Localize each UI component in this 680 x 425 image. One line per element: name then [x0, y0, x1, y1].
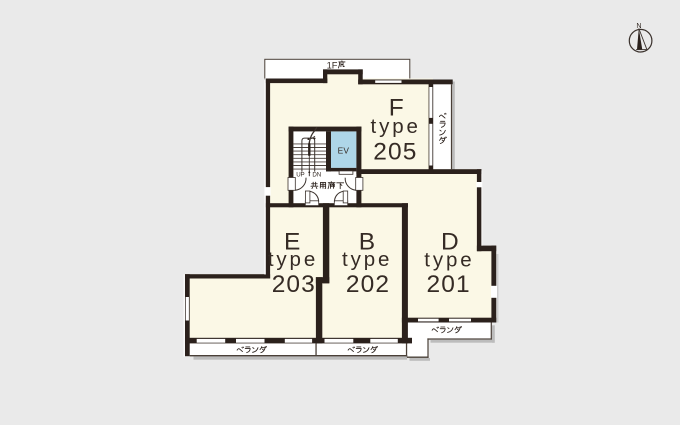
svg-text:type: type: [342, 248, 392, 271]
svg-text:DN: DN: [312, 171, 321, 178]
svg-text:EV: EV: [338, 145, 350, 155]
svg-text:201: 201: [427, 271, 471, 298]
svg-text:1F: 1F: [327, 60, 338, 70]
svg-text:202: 202: [346, 271, 390, 298]
svg-text:type: type: [268, 248, 318, 271]
svg-text:203: 203: [272, 271, 316, 298]
svg-text:N: N: [636, 21, 641, 30]
svg-text:205: 205: [373, 138, 417, 165]
svg-text:type: type: [371, 115, 421, 138]
svg-text:type: type: [424, 248, 474, 271]
svg-text:UP: UP: [296, 171, 304, 178]
